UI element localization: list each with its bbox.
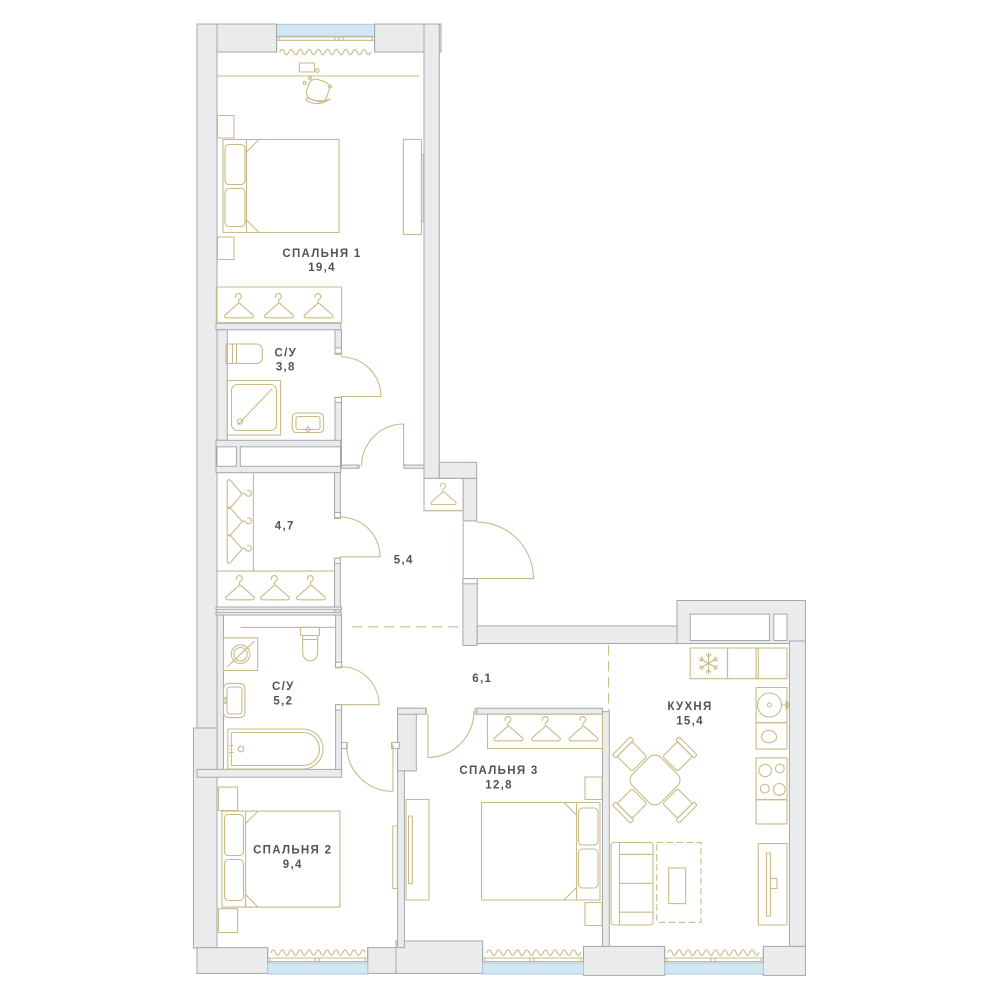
svg-text:19,4: 19,4: [308, 262, 336, 274]
svg-text:6,1: 6,1: [472, 673, 492, 685]
svg-text:3,8: 3,8: [276, 362, 296, 374]
svg-text:С/У: С/У: [272, 681, 295, 693]
svg-text:12,8: 12,8: [485, 780, 513, 792]
svg-text:15,4: 15,4: [676, 716, 704, 728]
svg-text:СПАЛЬНЯ 3: СПАЛЬНЯ 3: [459, 765, 538, 777]
svg-text:5,2: 5,2: [273, 695, 293, 707]
svg-text:СПАЛЬНЯ 1: СПАЛЬНЯ 1: [282, 248, 361, 260]
svg-text:СПАЛЬНЯ 2: СПАЛЬНЯ 2: [253, 845, 332, 857]
svg-text:5,4: 5,4: [394, 555, 414, 567]
svg-text:С/У: С/У: [275, 348, 298, 360]
svg-text:КУХНЯ: КУХНЯ: [667, 701, 712, 713]
svg-text:9,4: 9,4: [283, 859, 303, 871]
svg-text:4,7: 4,7: [275, 521, 295, 533]
